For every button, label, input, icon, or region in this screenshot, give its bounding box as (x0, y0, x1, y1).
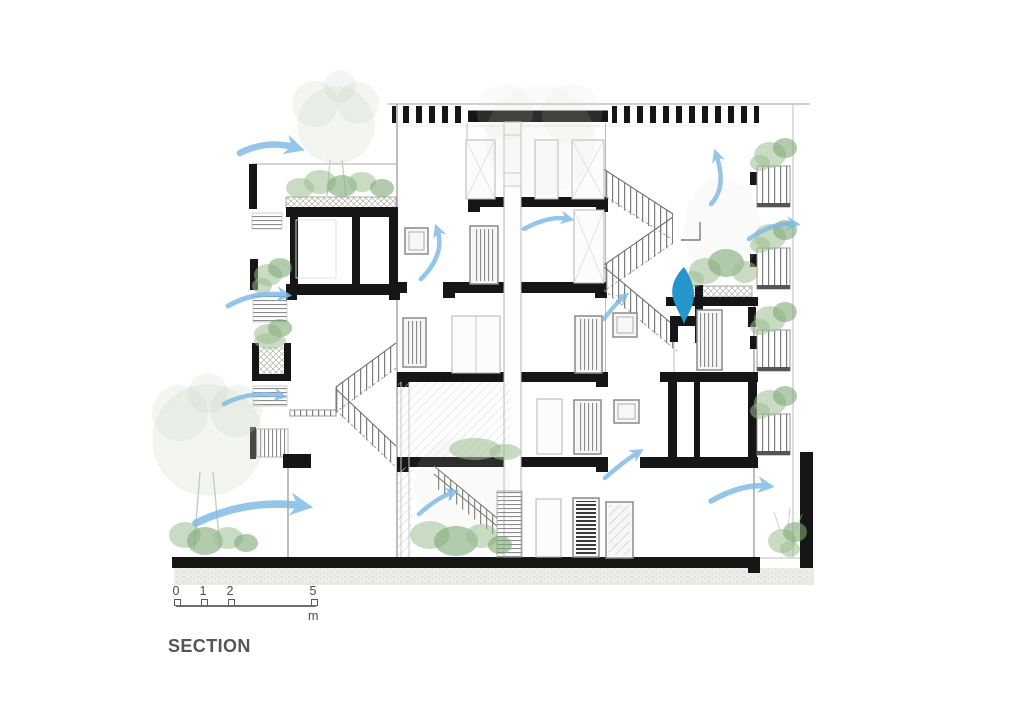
courtyard-tree (410, 435, 521, 556)
square-window (614, 400, 639, 423)
square-window (405, 228, 428, 254)
airflow-arrow (711, 486, 768, 501)
roof-garden-planter (286, 197, 396, 208)
vent-grille (252, 213, 282, 229)
bridge-walkway (290, 410, 336, 416)
ground-step (748, 559, 760, 573)
dark-louver-door (573, 498, 599, 557)
roof-louvers-right (612, 106, 759, 123)
door (536, 499, 561, 557)
balcony-planter (750, 330, 790, 371)
airflow-arrow (524, 218, 569, 229)
left-wing (249, 164, 400, 468)
vent-grille (253, 295, 287, 322)
square-window (613, 313, 637, 337)
airflow-arrow (240, 144, 297, 153)
roof-garden-plants (286, 170, 394, 198)
bedroom-wardrobe (296, 220, 336, 278)
ground-hatch (174, 568, 814, 585)
section-sheet: 0 1 2 5 m SECTION (0, 0, 1024, 724)
drawing-title: SECTION (168, 636, 251, 657)
right-boundary-wall (800, 452, 813, 568)
balcony-planter (750, 166, 790, 207)
louver-door (575, 316, 602, 373)
louver-door (470, 226, 498, 284)
ground-slab (172, 557, 760, 568)
airflow-arrow (605, 452, 639, 478)
louver-door (574, 400, 601, 454)
section-drawing (0, 0, 1024, 724)
roof-louvers-left (392, 106, 464, 123)
door (537, 399, 562, 454)
terrace-tree (684, 178, 760, 287)
glass-door (606, 502, 633, 558)
louver-window (697, 310, 722, 370)
tree (152, 373, 263, 555)
louver-door (403, 318, 426, 367)
